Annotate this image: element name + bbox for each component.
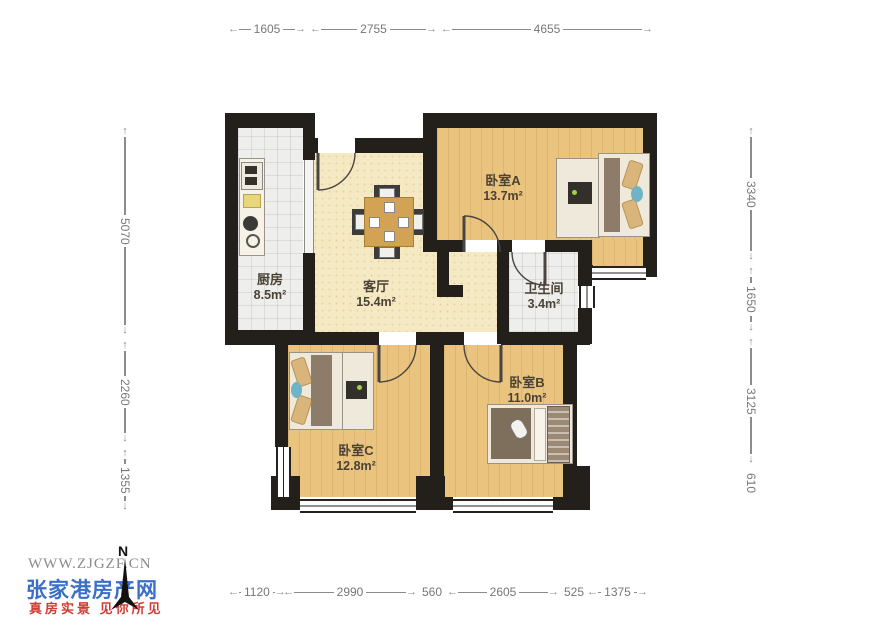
room-label-bathroom: 卫生间3.4m² [524, 281, 563, 313]
dim-right-2: ↑3125↓ [744, 337, 758, 465]
dim-left-0: ↑5070↓ [118, 126, 132, 336]
dim-bottom-4: 525 [561, 585, 585, 599]
dim-left-2: ↑1355↓ [118, 448, 132, 512]
kitchen-faucet [246, 234, 260, 248]
room-label-kitchen: 厨房8.5m² [254, 272, 287, 304]
dim-bottom-5: ←1375→ [587, 585, 648, 599]
dim-right-3: 610 [744, 469, 758, 497]
dim-right-0: ↑3340↓ [744, 126, 758, 262]
bedroom-c-bed [289, 352, 343, 430]
dining-table [364, 197, 414, 247]
bedroom-a-door [464, 216, 500, 252]
bedroom-a-bed [598, 153, 650, 237]
entry-door [318, 153, 355, 190]
dim-bottom-2: 560 [419, 585, 445, 599]
floorplan-canvas: 厨房8.5m² 客厅15.4m² 卧室A13.7m² 卫生间3.4m² 卧室B1… [0, 0, 880, 625]
bedroom-b-bed [487, 404, 573, 464]
bedroom-a-tv [568, 182, 592, 204]
bedroom-c-tv [346, 381, 367, 399]
kitchen-board [243, 194, 261, 208]
dim-bottom-1: ←2990→ [283, 585, 417, 599]
north-arrow-icon [103, 555, 148, 617]
dim-bottom-3: ←2605→ [447, 585, 559, 599]
kitchen-sink [243, 216, 258, 231]
dim-bottom-0: ←1120→ [228, 585, 281, 599]
dim-left-1: ↑2260↓ [118, 340, 132, 444]
bedroom-b-door [464, 345, 501, 382]
bedroom-c-door [379, 345, 416, 382]
dim-top-0: ←1605→ [228, 22, 306, 36]
dim-top-2: ←4655→ [441, 22, 653, 36]
room-label-bedroom-c: 卧室C12.8m² [336, 443, 376, 475]
dim-right-1: ↑1650↓ [744, 266, 758, 333]
bathroom-door [512, 252, 545, 285]
room-label-bedroom-b: 卧室B11.0m² [508, 375, 547, 407]
kitchen-stove [241, 162, 263, 190]
dim-top-1: ←2755→ [310, 22, 437, 36]
room-label-living: 客厅15.4m² [356, 279, 396, 311]
room-label-bedroom-a: 卧室A13.7m² [483, 173, 523, 205]
